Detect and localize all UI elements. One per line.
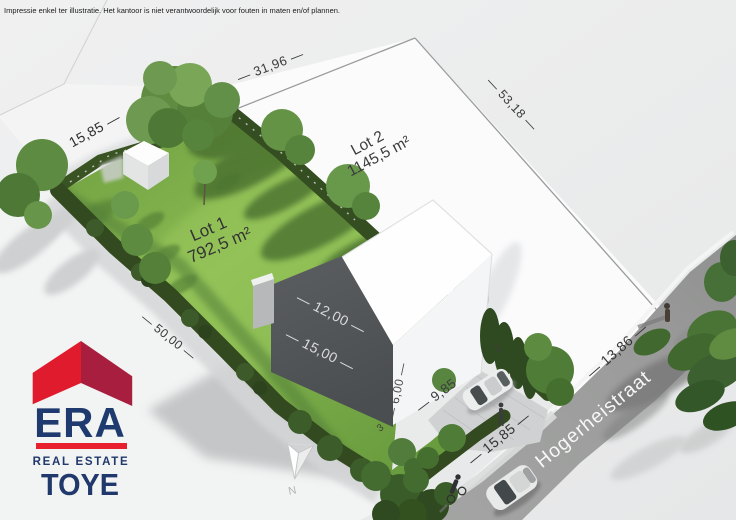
svg-text:Impressie enkel ter illustrati: Impressie enkel ter illustratie. Het kan… bbox=[4, 6, 340, 15]
svg-text:TOYE: TOYE bbox=[41, 467, 119, 502]
svg-text:ERA: ERA bbox=[34, 399, 126, 446]
